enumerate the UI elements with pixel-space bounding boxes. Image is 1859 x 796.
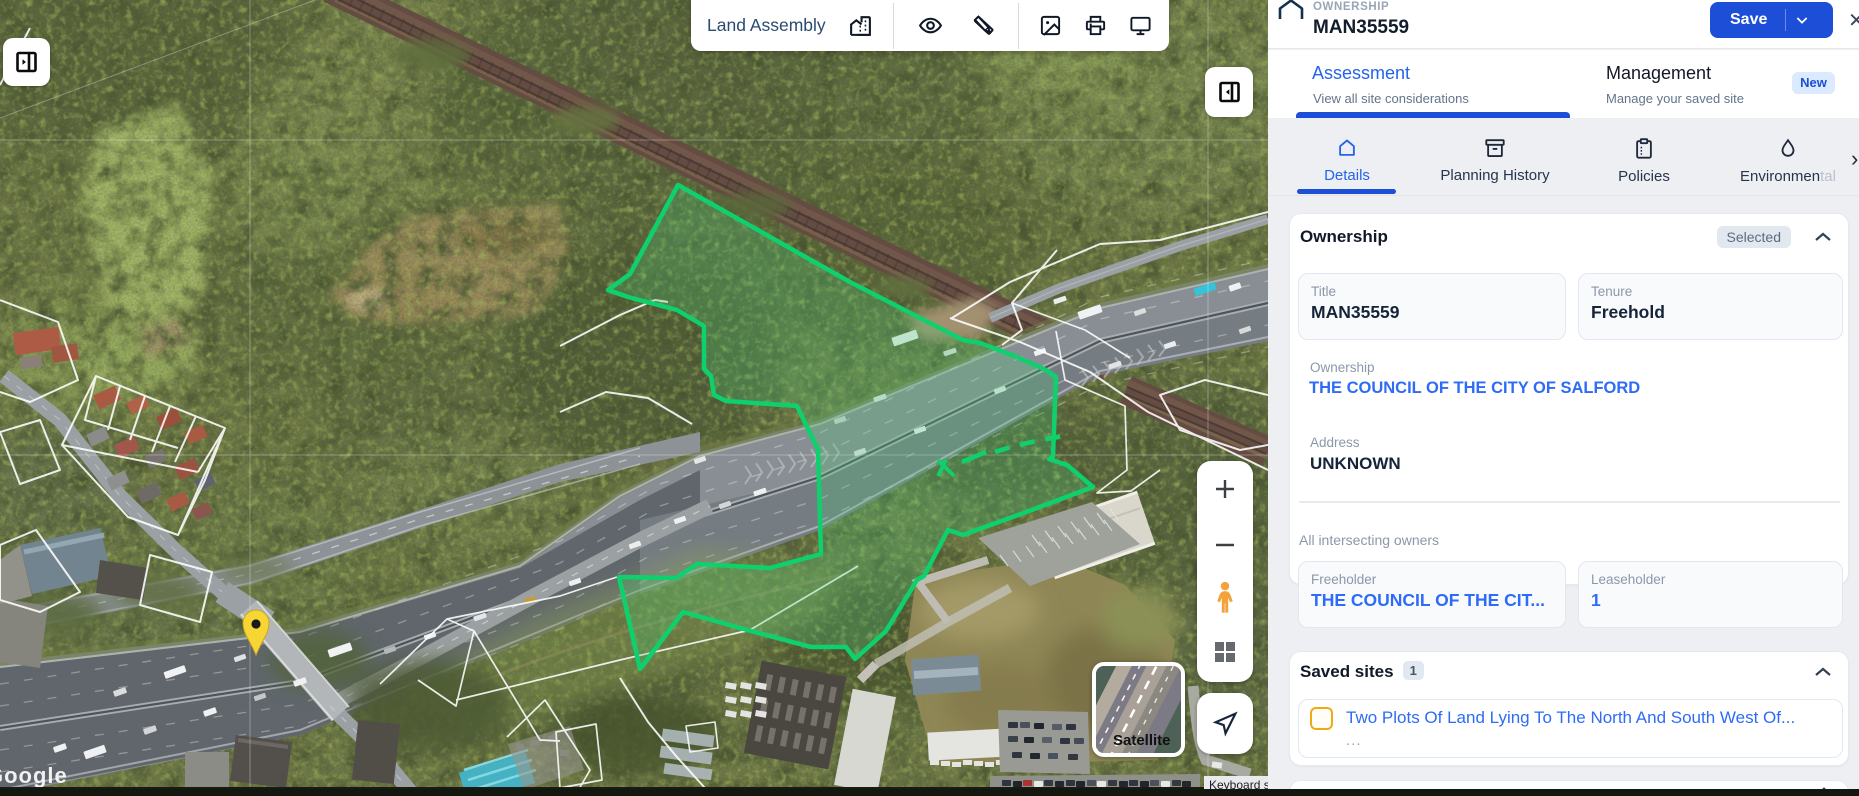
svg-text:Google: Google xyxy=(0,763,68,788)
